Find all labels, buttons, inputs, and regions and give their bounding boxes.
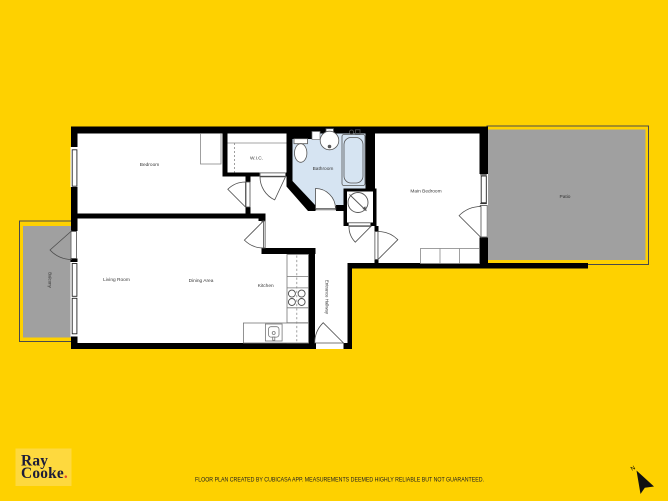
svg-text:Living Room: Living Room <box>103 277 130 283</box>
svg-text:Balcony: Balcony <box>48 272 53 288</box>
svg-text:Cooke.: Cooke. <box>21 465 68 482</box>
svg-text:FLOOR PLAN CREATED BY CUBICASA: FLOOR PLAN CREATED BY CUBICASA APP. MEAS… <box>195 476 484 483</box>
svg-text:Patio: Patio <box>560 194 571 200</box>
svg-text:Main Bedroom: Main Bedroom <box>410 189 441 195</box>
svg-text:Bathroom: Bathroom <box>313 166 334 172</box>
svg-text:Dining Area: Dining Area <box>189 278 214 284</box>
svg-text:W.I.C.: W.I.C. <box>250 156 263 162</box>
svg-text:Entrance Hallway: Entrance Hallway <box>325 280 330 315</box>
svg-text:Kitchen: Kitchen <box>258 283 274 289</box>
svg-text:Bedroom: Bedroom <box>140 162 159 168</box>
